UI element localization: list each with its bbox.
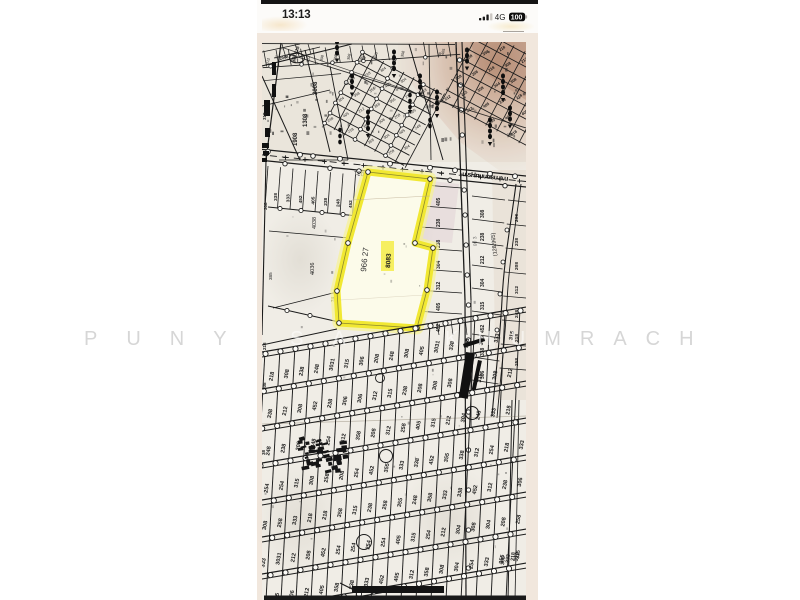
- svg-text:333: 333: [286, 194, 292, 202]
- svg-text:315: 315: [515, 550, 522, 559]
- svg-text:312: 312: [514, 286, 520, 294]
- svg-text:405: 405: [311, 196, 317, 204]
- svg-text:238: 238: [323, 197, 329, 205]
- svg-text:248: 248: [526, 124, 535, 132]
- svg-text:315: 315: [480, 301, 486, 310]
- svg-text:4038: 4038: [312, 217, 318, 229]
- svg-text:355: 355: [531, 88, 540, 96]
- svg-text:318: 318: [262, 112, 267, 120]
- svg-text:258: 258: [542, 68, 551, 76]
- svg-text:212: 212: [480, 255, 486, 264]
- svg-text:385: 385: [268, 272, 273, 280]
- svg-text:308: 308: [537, 104, 546, 112]
- svg-text:308: 308: [262, 382, 267, 390]
- svg-text:1908: 1908: [293, 132, 299, 146]
- svg-text:308: 308: [480, 209, 486, 218]
- svg-text:4G: 4G: [495, 12, 506, 21]
- svg-text:238: 238: [480, 232, 486, 241]
- svg-text:208: 208: [514, 262, 520, 270]
- svg-text:238: 238: [514, 238, 520, 246]
- svg-text:248: 248: [336, 199, 342, 207]
- svg-text:2008: 2008: [313, 81, 319, 95]
- svg-text:208: 208: [514, 214, 520, 222]
- svg-text:100: 100: [511, 14, 523, 21]
- svg-text:212: 212: [526, 72, 535, 80]
- svg-text:452: 452: [298, 195, 304, 203]
- svg-text:99 3: 99 3: [472, 236, 479, 246]
- svg-text:38: 38: [261, 449, 266, 455]
- svg-text:304: 304: [480, 278, 486, 287]
- svg-text:405: 405: [436, 302, 442, 311]
- svg-text:212: 212: [548, 84, 557, 92]
- svg-text:238: 238: [436, 218, 442, 227]
- svg-text:338: 338: [273, 193, 279, 201]
- svg-text:405: 405: [436, 197, 442, 206]
- svg-text:312: 312: [436, 281, 442, 290]
- svg-text:8083: 8083: [385, 253, 393, 268]
- svg-text:308: 308: [263, 202, 268, 210]
